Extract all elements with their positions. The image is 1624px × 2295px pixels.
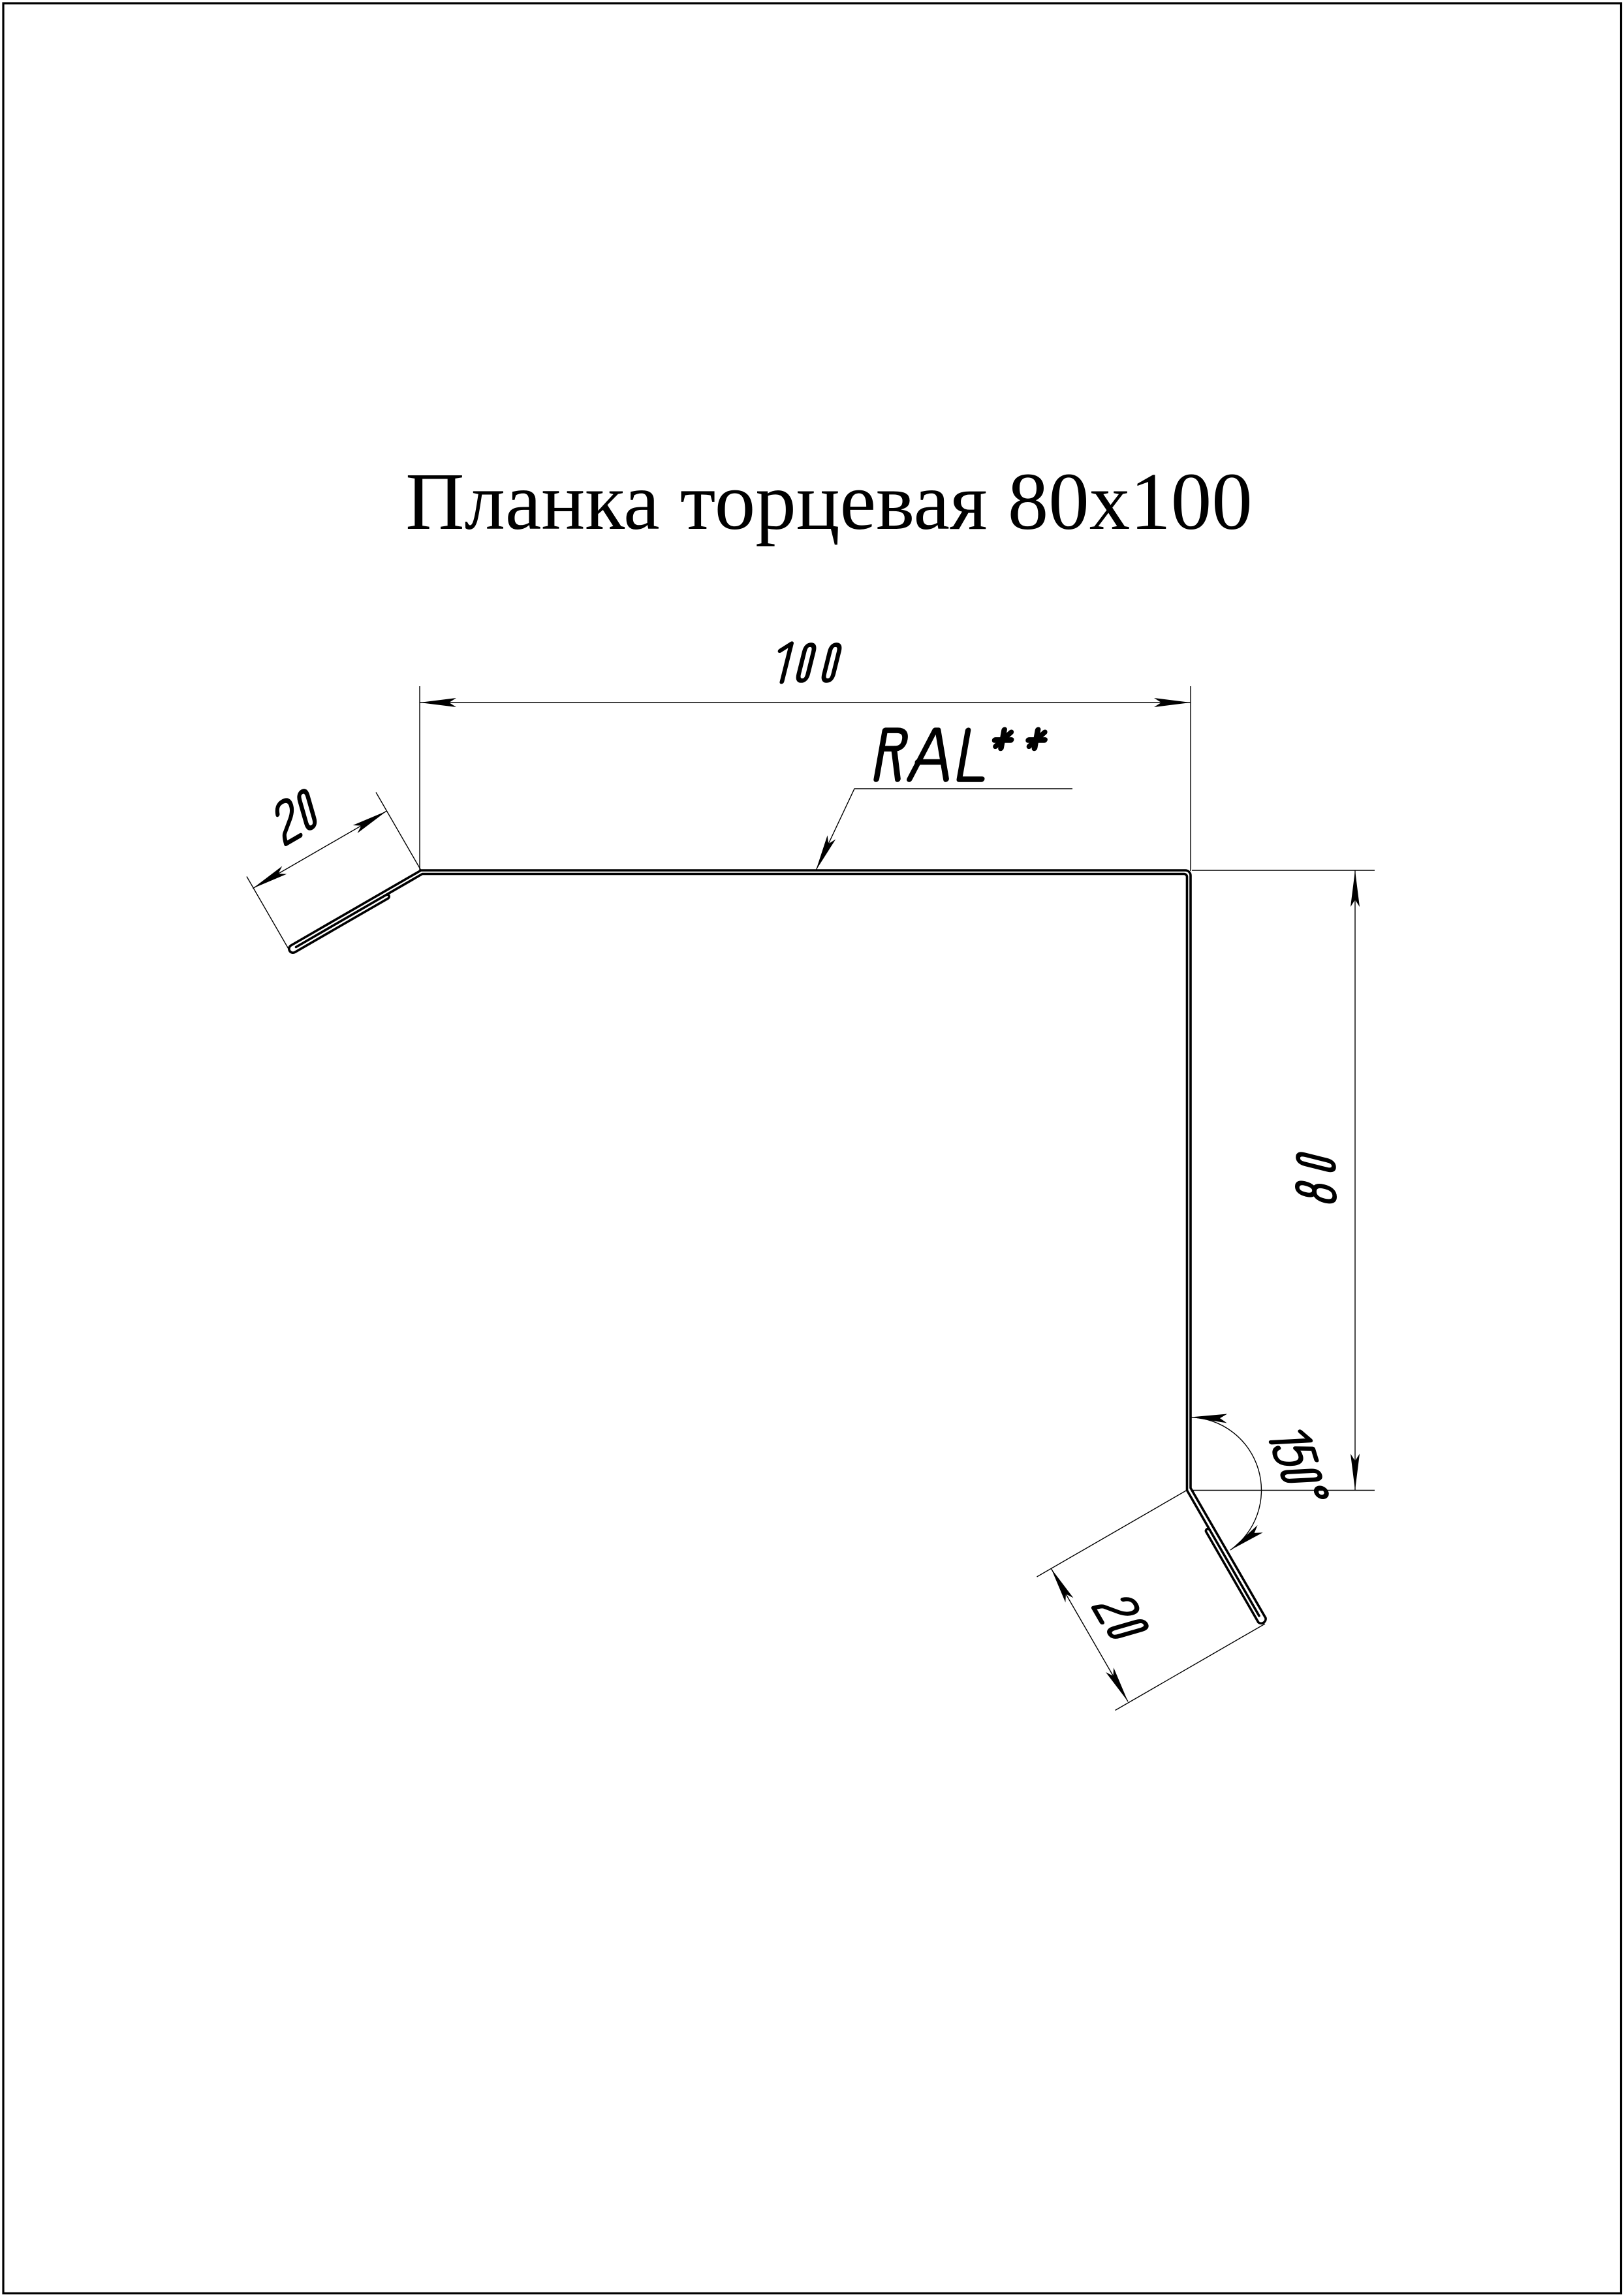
svg-text:Планка торцевая 80x100: Планка торцевая 80x100 — [405, 457, 1253, 547]
